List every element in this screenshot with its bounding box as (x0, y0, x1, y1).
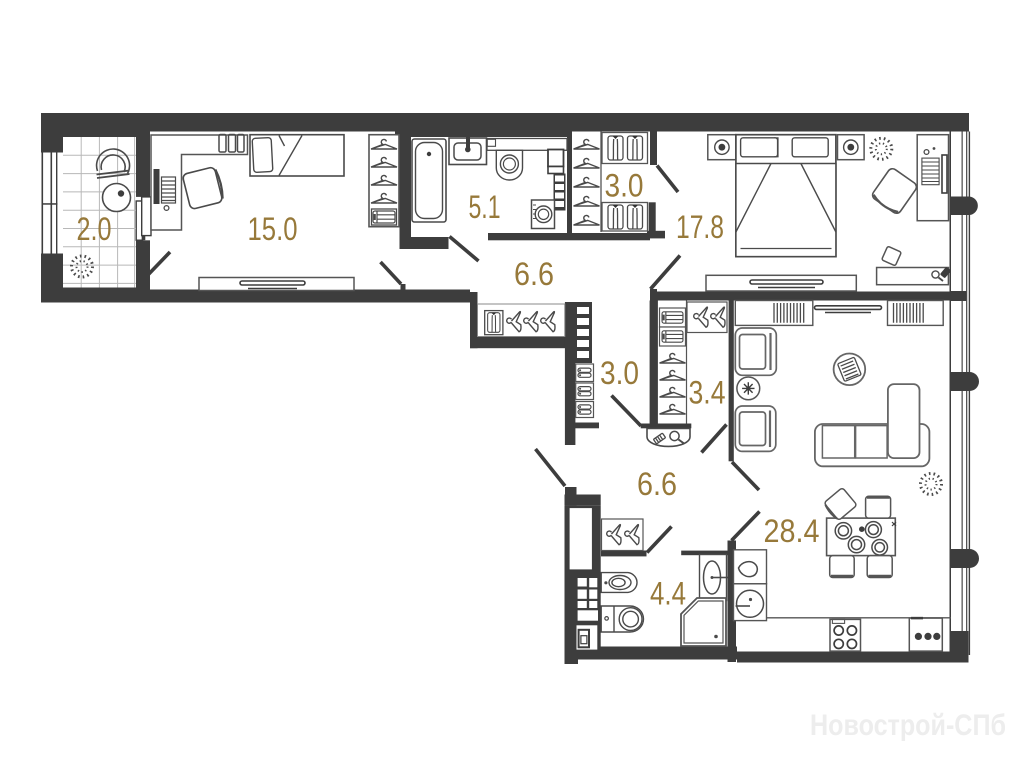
svg-text:3.4: 3.4 (689, 375, 726, 411)
svg-text:28.4: 28.4 (764, 513, 820, 549)
svg-text:3.0: 3.0 (600, 355, 639, 391)
svg-text:6.6: 6.6 (514, 256, 554, 292)
svg-text:2.0: 2.0 (77, 211, 112, 247)
svg-text:4.4: 4.4 (650, 576, 686, 612)
svg-text:Новострой-СПб: Новострой-СПб (810, 709, 1006, 742)
svg-text:6.6: 6.6 (637, 466, 677, 502)
svg-text:17.8: 17.8 (676, 209, 724, 245)
svg-text:15.0: 15.0 (248, 211, 298, 247)
svg-text:5.1: 5.1 (469, 189, 501, 225)
svg-text:3.0: 3.0 (605, 168, 644, 204)
